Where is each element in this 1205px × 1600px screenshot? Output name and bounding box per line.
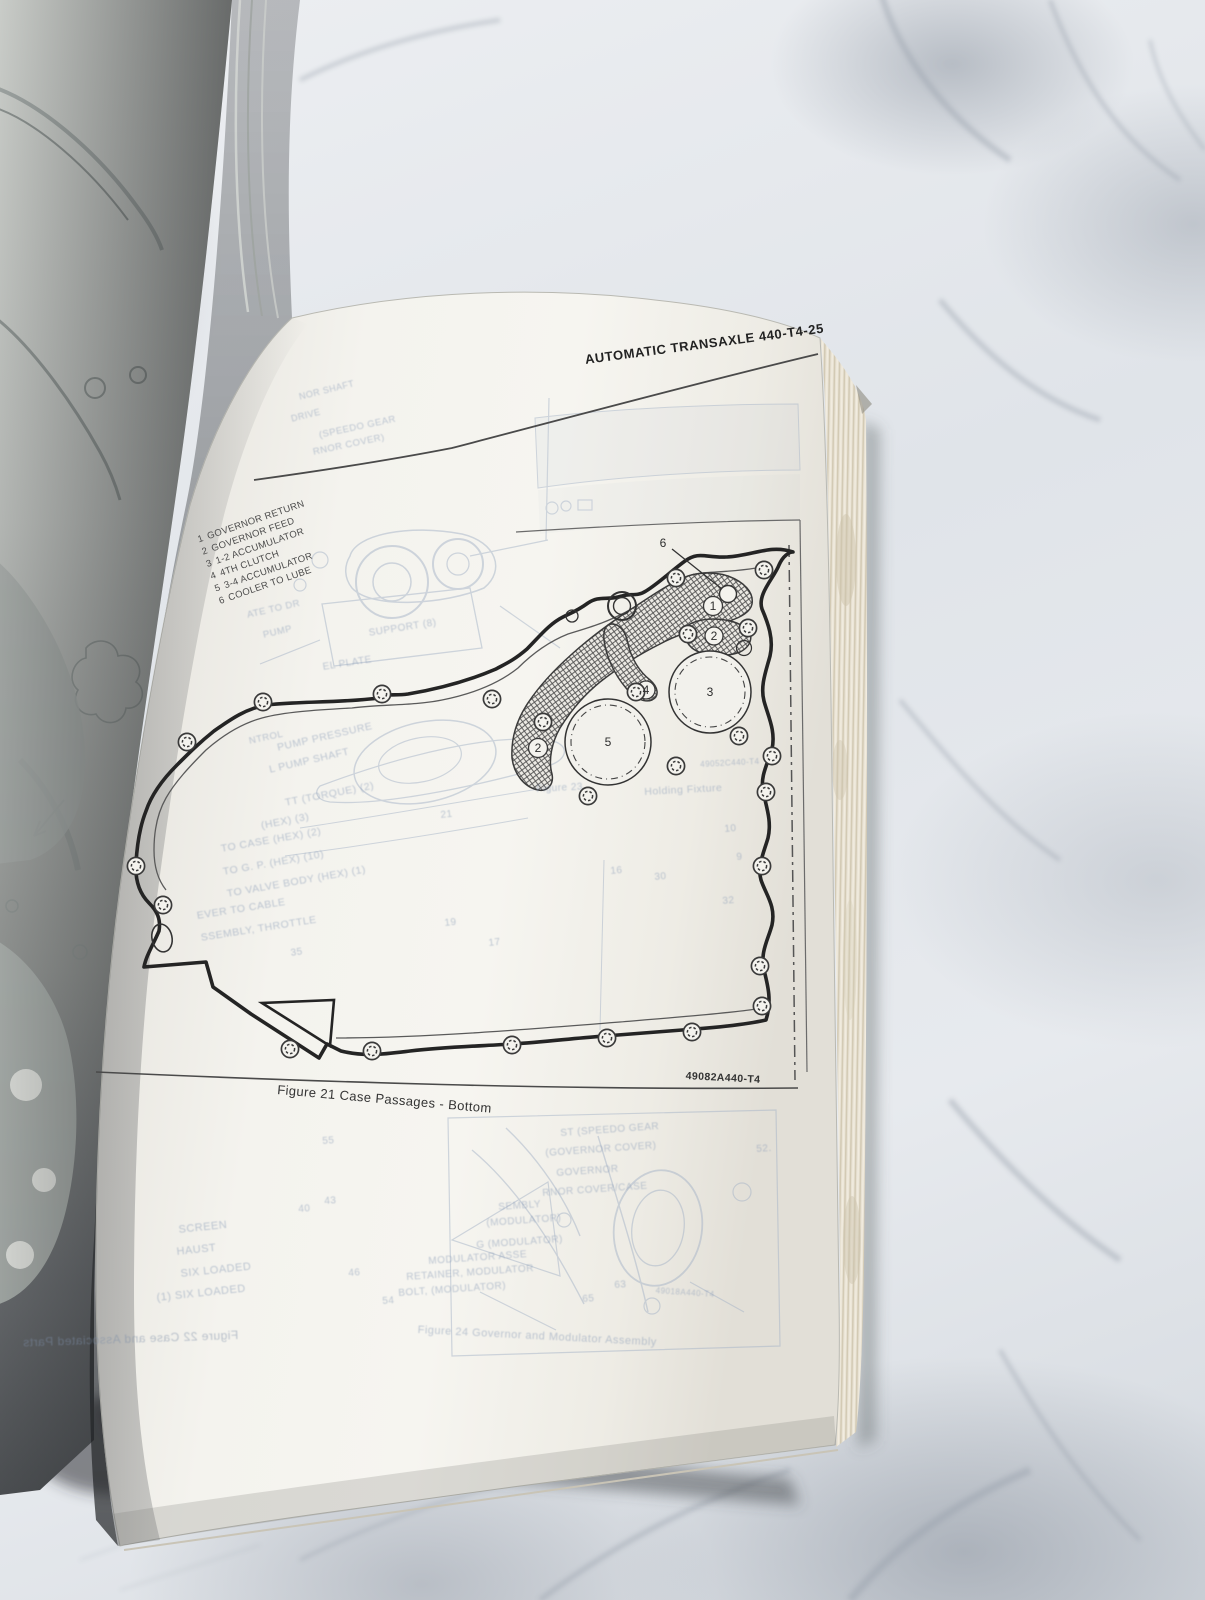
bolt-hole-icon (755, 561, 772, 578)
ghost-bleed-text: 40 (298, 1203, 311, 1215)
bolt-hole-icon (483, 690, 500, 707)
bolt-hole-icon (757, 783, 774, 800)
bolt-hole-icon (127, 857, 144, 874)
figure-callout-number: 5 (605, 735, 612, 749)
bolt-hole-icon (763, 747, 780, 764)
bolt-hole-icon (667, 757, 684, 774)
ghost-bleed-text: 30 (654, 871, 667, 883)
ghost-bleed-text: 55 (322, 1135, 335, 1147)
bolt-hole-icon (683, 1023, 700, 1040)
ghost-bleed-text: 63 (614, 1279, 627, 1291)
bolt-hole-icon (534, 713, 551, 730)
bolt-hole-icon (154, 896, 171, 913)
ghost-bleed-text: 65 (582, 1293, 595, 1305)
bolt-hole-icon (373, 685, 390, 702)
bolt-hole-icon (730, 727, 747, 744)
bolt-hole-icon (739, 619, 756, 636)
ghost-bleed-text: 54 (382, 1295, 395, 1307)
bolt-hole-icon (281, 1040, 298, 1057)
figure-callout-number: 3 (707, 685, 714, 699)
ghost-bleed-text: 32 (722, 895, 735, 907)
bolt-hole-icon (753, 857, 770, 874)
ghost-bleed-text: 16 (610, 865, 623, 877)
figure-callout-number: 1 (710, 599, 717, 613)
bolt-hole-icon (751, 957, 768, 974)
bolt-hole-icon (178, 733, 195, 750)
figure-callout-number: 4 (643, 683, 650, 697)
figure-callout-number: 2 (711, 629, 718, 643)
photo-scene (0, 0, 1205, 1600)
figure-callout-number: 6 (660, 536, 667, 550)
ghost-bleed-text: 19 (444, 917, 457, 929)
ghost-bleed-text: 52. (756, 1143, 772, 1155)
ghost-bleed-text: 21 (440, 809, 453, 821)
ghost-bleed-text: 9 (736, 851, 743, 862)
ghost-bleed-text: 10 (724, 823, 737, 835)
bolt-hole-icon (598, 1029, 615, 1046)
ghost-bleed-text: 17 (488, 937, 501, 949)
bolt-hole-icon (753, 997, 770, 1014)
bolt-hole-icon (667, 569, 684, 586)
ghost-bleed-text: 43 (324, 1195, 337, 1207)
bolt-hole-icon (503, 1036, 520, 1053)
bolt-hole-icon (679, 625, 696, 642)
bolt-hole-icon (363, 1042, 380, 1059)
ghost-bleed-text: 35 (290, 946, 304, 959)
bolt-hole-icon (254, 693, 271, 710)
figure-callout-number: 2 (535, 741, 542, 755)
ghost-bleed-text: 46 (348, 1267, 361, 1279)
